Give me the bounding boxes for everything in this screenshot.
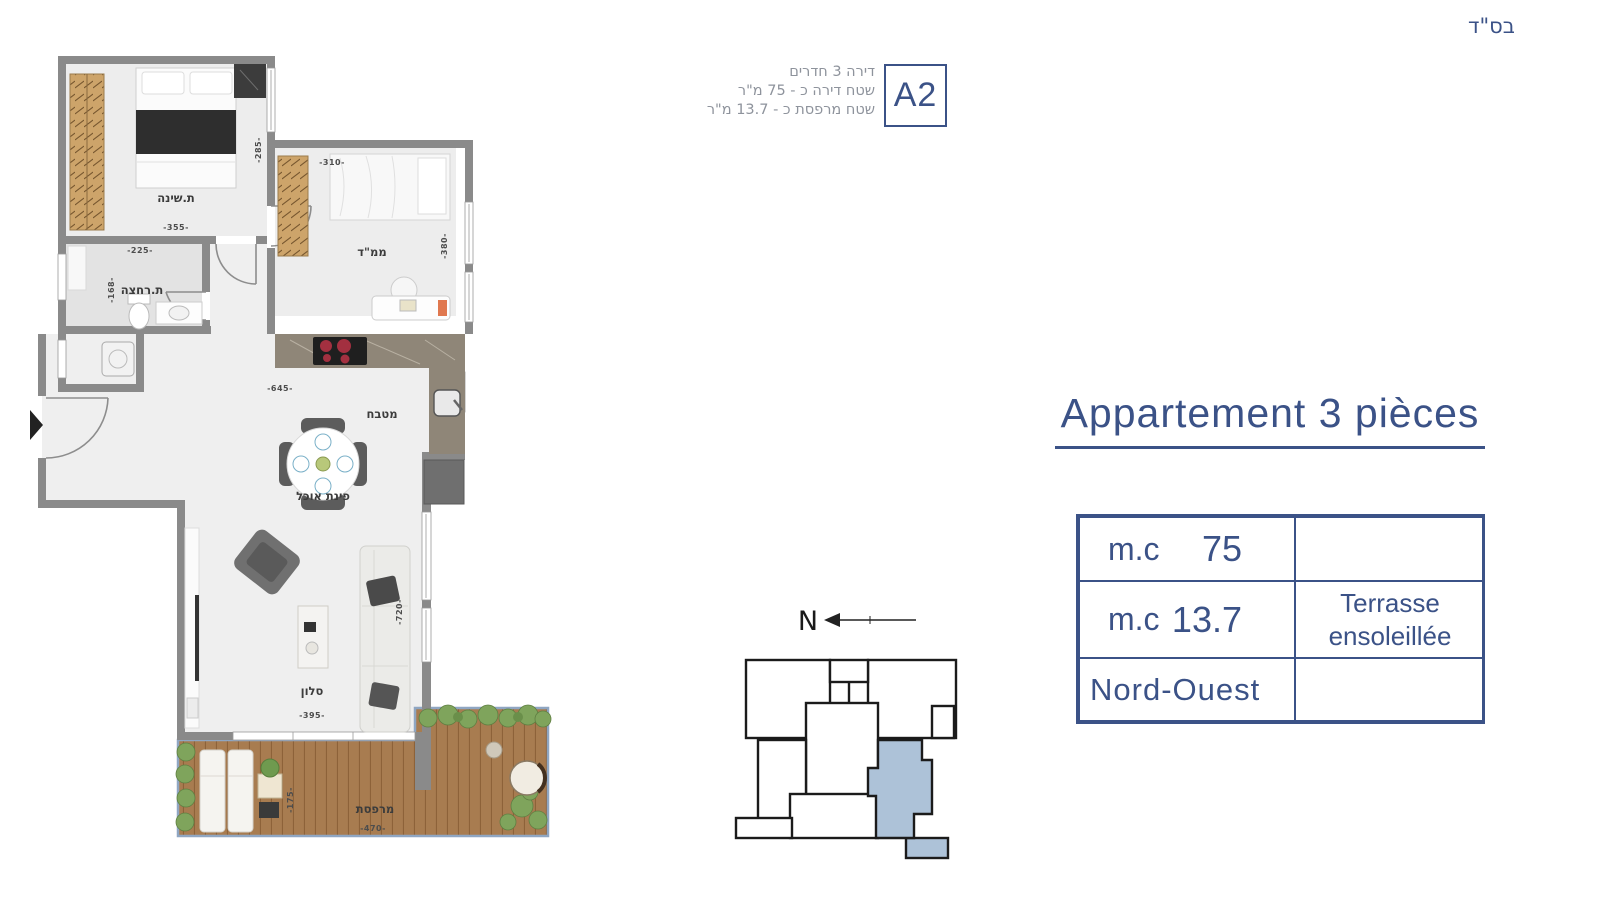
apartment-title: Appartement 3 pièces [1040, 390, 1500, 437]
terrace-height-dim: -175- [286, 787, 295, 813]
apartment-info-table: m.c 75 m.c 13.7 Terrasse ensoleillée Nor… [1076, 514, 1485, 724]
unit-badge-label: A2 [894, 76, 938, 115]
unit-badge: A2 [884, 64, 947, 127]
mamad-height-dim: -380- [440, 233, 449, 259]
bedroom-width-dim: -355- [163, 223, 189, 232]
area-value: 75 [1202, 528, 1242, 570]
kitchen-width-dim: -645- [267, 384, 293, 393]
building-outline [736, 660, 956, 858]
building-key-plan: N [718, 598, 968, 860]
summary-rooms: דירה 3 חדרים [655, 63, 875, 82]
area-row-cell: m.c 75 [1079, 517, 1295, 581]
terrace-width-dim: -470- [360, 824, 386, 833]
orientation-cell: Nord-Ouest [1079, 658, 1295, 721]
bathroom-width-dim: -225- [127, 246, 153, 255]
terrace-unit-label: m.c [1108, 601, 1160, 638]
north-label: N [798, 606, 818, 637]
terrace-note-cell: Terrasse ensoleillée [1295, 581, 1485, 658]
terrace-value: 13.7 [1172, 599, 1242, 641]
summary-terrace: שטח מרפסת כ - 13.7 מ"ר [655, 101, 875, 120]
living-height-dim: -720- [395, 599, 404, 625]
kitchen-label: מטבח [366, 407, 397, 421]
bedroom-height-dim: -285- [254, 137, 263, 163]
orientation-value: Nord-Ouest [1090, 672, 1260, 708]
bedroom-label: ת.שינה [157, 191, 194, 205]
empty-cell-top [1295, 517, 1485, 581]
empty-cell-bottom [1295, 658, 1485, 721]
terrace-label: מרפסת [356, 802, 394, 816]
terrace-row-cell: m.c 13.7 [1079, 581, 1295, 658]
apartment-summary: דירה 3 חדרים שטח דירה כ - 75 מ"ר שטח מרפ… [655, 63, 875, 120]
dining-label: פינת אוכל [296, 489, 350, 503]
highlighted-unit [868, 740, 932, 838]
area-unit-label: m.c [1108, 531, 1160, 568]
highlighted-unit-extension [906, 838, 948, 858]
summary-area: שטח דירה כ - 75 מ"ר [655, 82, 875, 101]
bathroom-label: ת.רחצה [121, 283, 163, 297]
living-width-dim: -395- [299, 711, 325, 720]
mamad-label: ממ"ד [357, 245, 386, 259]
floor-plan: ת.שינה -355- -285- ת.רחצה -225- -168- ממ… [30, 50, 570, 860]
north-arrow: N [798, 606, 916, 637]
terrace-note-line2: ensoleillée [1329, 620, 1452, 653]
terrace-note-line1: Terrasse [1340, 587, 1440, 620]
mamad-width-dim: -310- [319, 158, 345, 167]
bsd-text: בס"ד [1468, 14, 1515, 38]
bathroom-height-dim: -168- [107, 277, 116, 303]
living-label: סלון [301, 684, 324, 698]
